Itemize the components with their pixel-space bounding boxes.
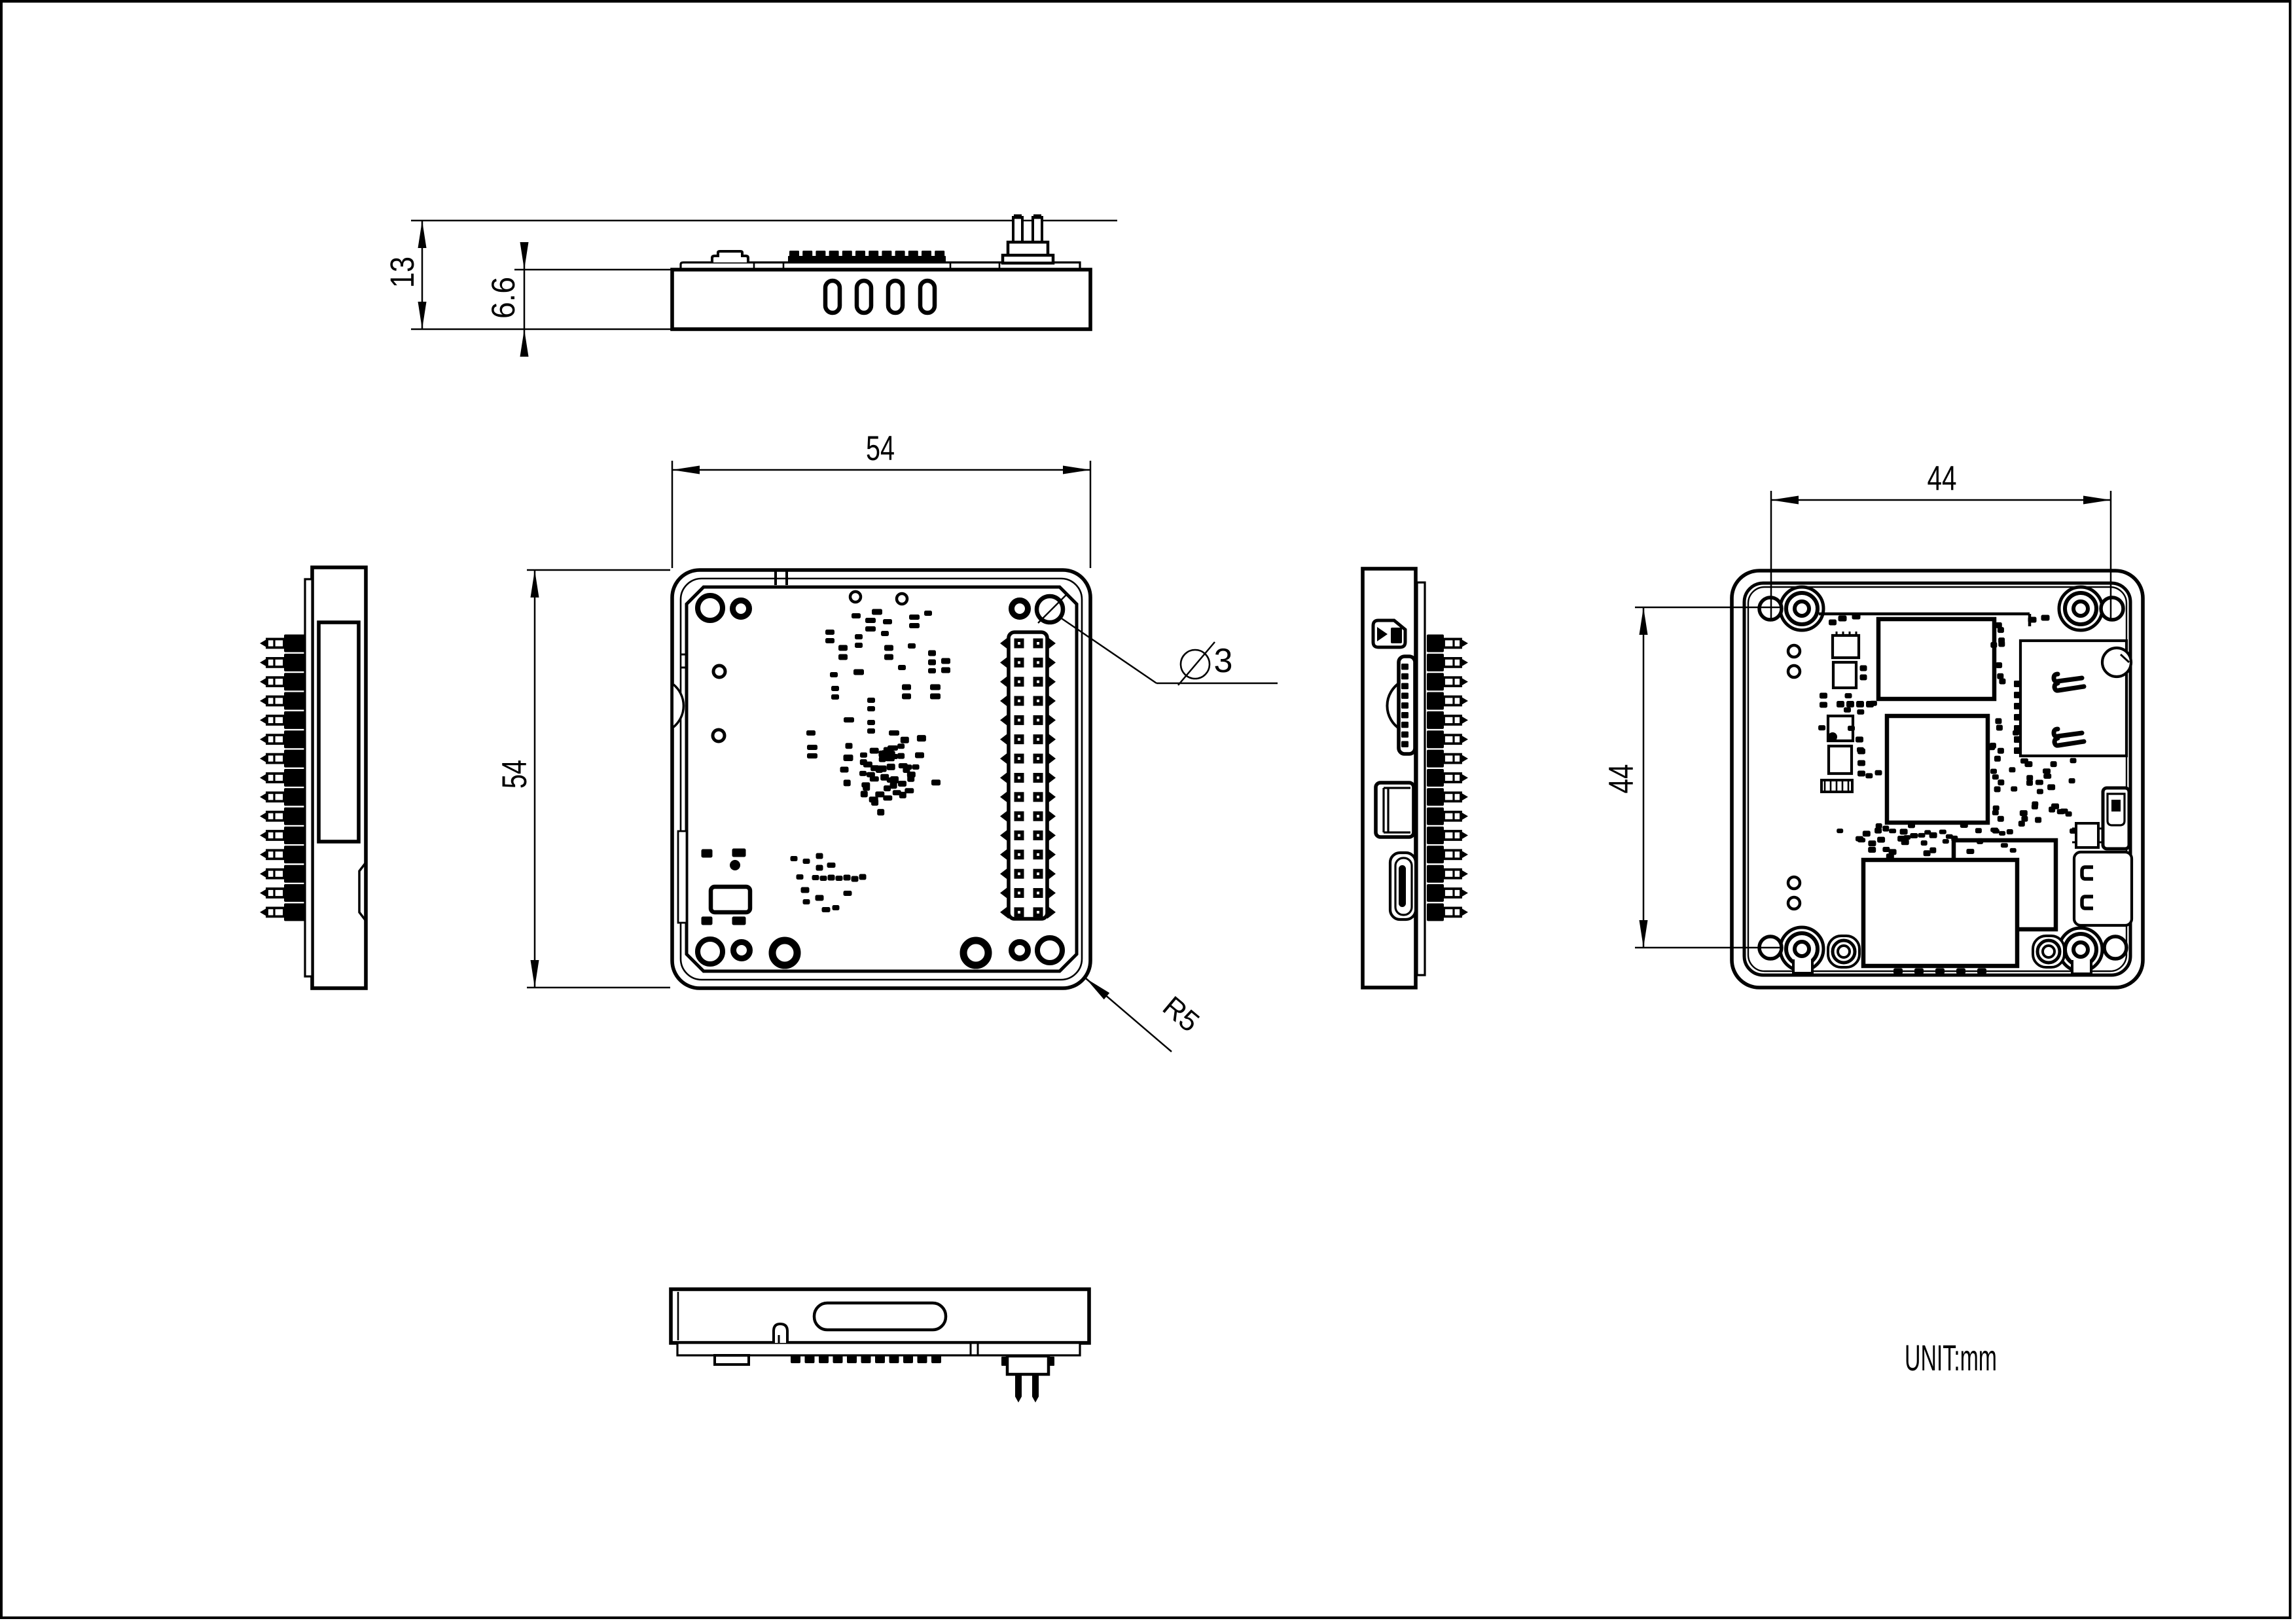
- svg-text:3: 3: [1214, 642, 1233, 680]
- svg-text:44: 44: [1928, 459, 1957, 498]
- svg-text:UNIT:mm: UNIT:mm: [1905, 1337, 1997, 1378]
- svg-text:6.6: 6.6: [485, 277, 522, 319]
- svg-text:13: 13: [384, 257, 421, 288]
- svg-text:44: 44: [1602, 764, 1641, 794]
- svg-text:54: 54: [495, 760, 534, 789]
- svg-text:54: 54: [866, 429, 895, 468]
